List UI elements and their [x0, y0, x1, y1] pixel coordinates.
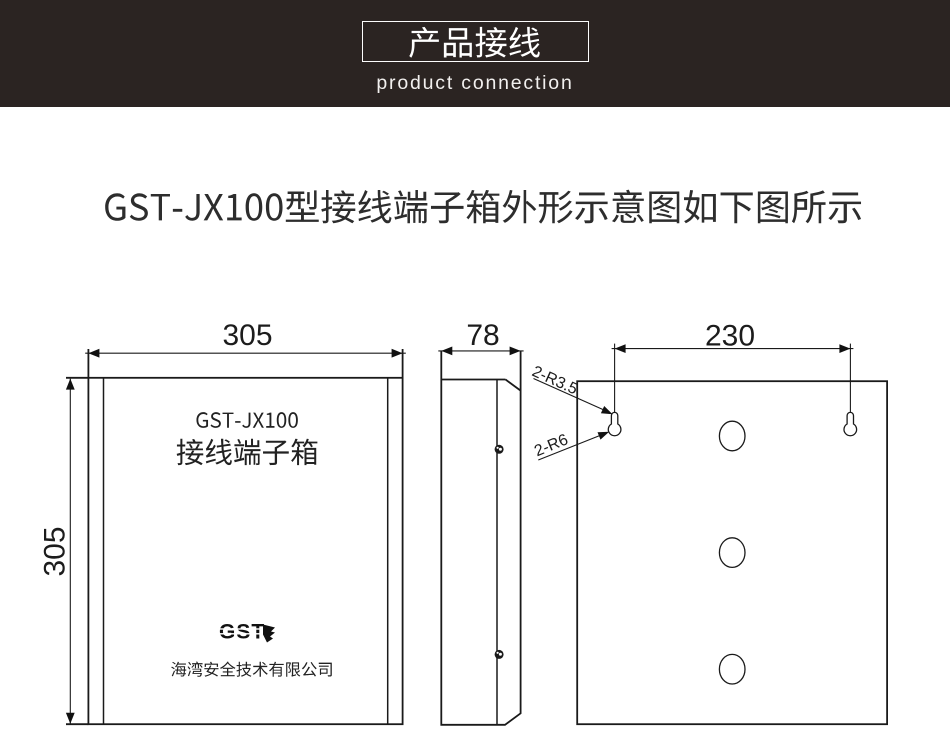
- svg-text:230: 230: [705, 319, 755, 352]
- svg-text:2-R6: 2-R6: [532, 431, 571, 460]
- svg-text:305: 305: [222, 319, 272, 352]
- svg-text:2-R3.5: 2-R3.5: [529, 363, 580, 398]
- svg-text:305: 305: [38, 526, 71, 576]
- svg-text:78: 78: [466, 319, 499, 352]
- svg-text:GST: GST: [219, 621, 265, 644]
